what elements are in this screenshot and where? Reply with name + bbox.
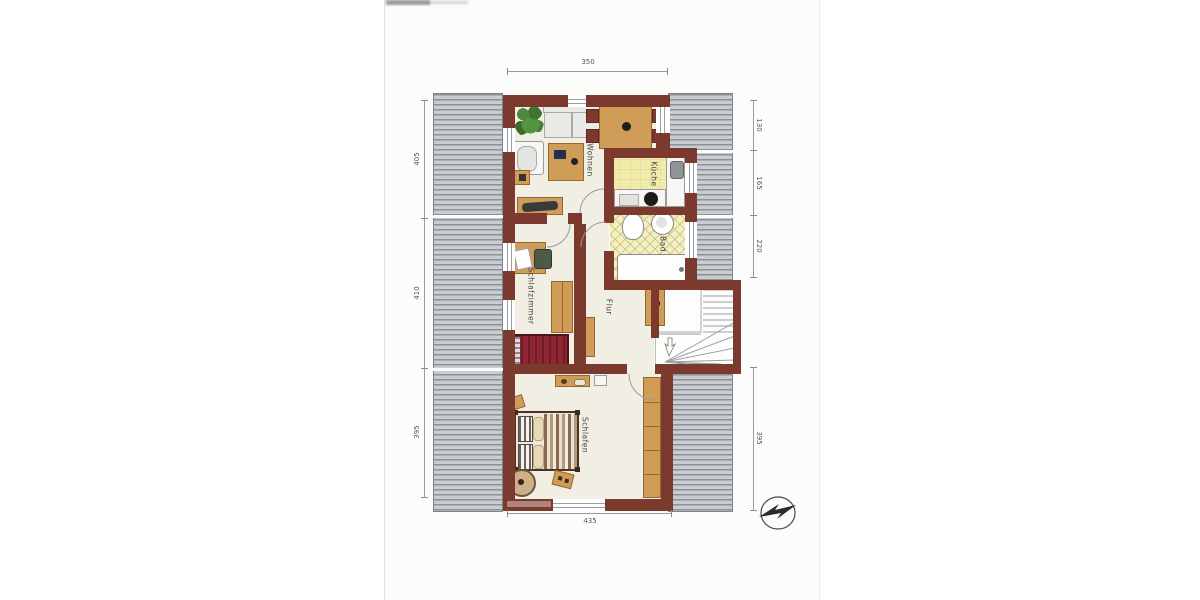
- dim-tick: [671, 510, 672, 517]
- room-label-bad: Bad: [659, 236, 668, 252]
- dimension-right-3: 220: [755, 239, 763, 252]
- dimension-line-bottom: [507, 513, 672, 514]
- room-label-kueche: Küche: [650, 161, 659, 186]
- dimension-top: 350: [581, 58, 594, 66]
- dim-tick: [421, 368, 428, 369]
- dim-tick: [421, 497, 428, 498]
- door-arcs: [0, 0, 1200, 600]
- dimension-left-3: 395: [413, 425, 421, 438]
- dim-tick: [667, 68, 668, 75]
- dim-tick: [750, 367, 757, 368]
- floor-plan-page: Wohnen Küche Bad Flur Schlafzimmer Schla…: [0, 0, 1200, 600]
- dimension-line-right-lower: [753, 367, 754, 510]
- dim-tick: [421, 100, 428, 101]
- room-label-flur: Flur: [605, 299, 614, 315]
- dimension-bottom: 435: [583, 517, 596, 525]
- dim-tick: [507, 510, 508, 517]
- dimension-line-right-upper: [753, 100, 754, 277]
- dim-tick: [507, 68, 508, 75]
- dim-tick: [750, 100, 757, 101]
- dimension-right-4: 395: [755, 431, 763, 444]
- dimension-left-1: 405: [413, 152, 421, 165]
- dim-tick: [750, 277, 757, 278]
- dimension-line-left: [424, 100, 425, 497]
- dim-tick: [421, 218, 428, 219]
- dim-tick: [750, 150, 757, 151]
- dimension-left-2: 410: [413, 286, 421, 299]
- dimension-line-top: [507, 71, 668, 72]
- wall-watermark: [507, 501, 551, 507]
- dim-tick: [750, 215, 757, 216]
- room-label-schlafen: Schlafen: [581, 417, 590, 453]
- room-label-schlafzimmer: Schlafzimmer: [527, 267, 536, 324]
- company-logo-icon: [753, 494, 805, 536]
- room-label-wohnen: Wohnen: [586, 143, 595, 176]
- dimension-right-2: 165: [755, 176, 763, 189]
- dimension-right-1: 130: [755, 118, 763, 131]
